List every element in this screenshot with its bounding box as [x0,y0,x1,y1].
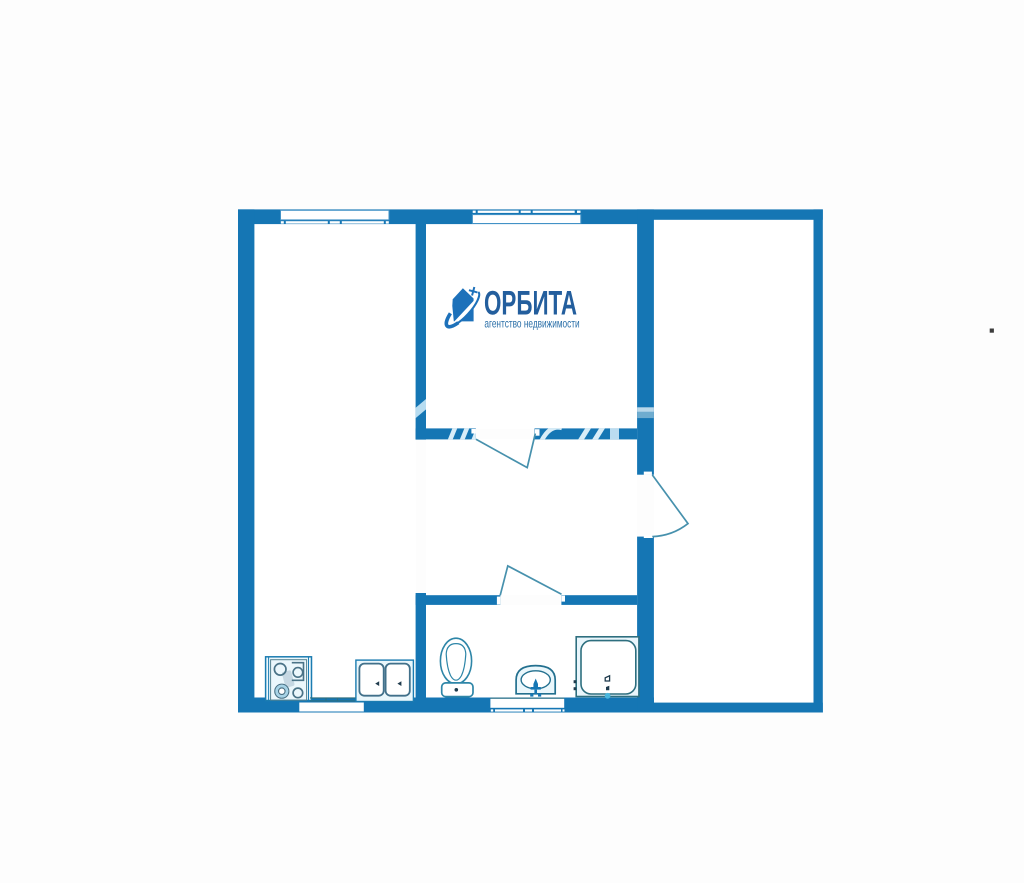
svg-text:агентство недвижимости: агентство недвижимости [484,317,579,330]
